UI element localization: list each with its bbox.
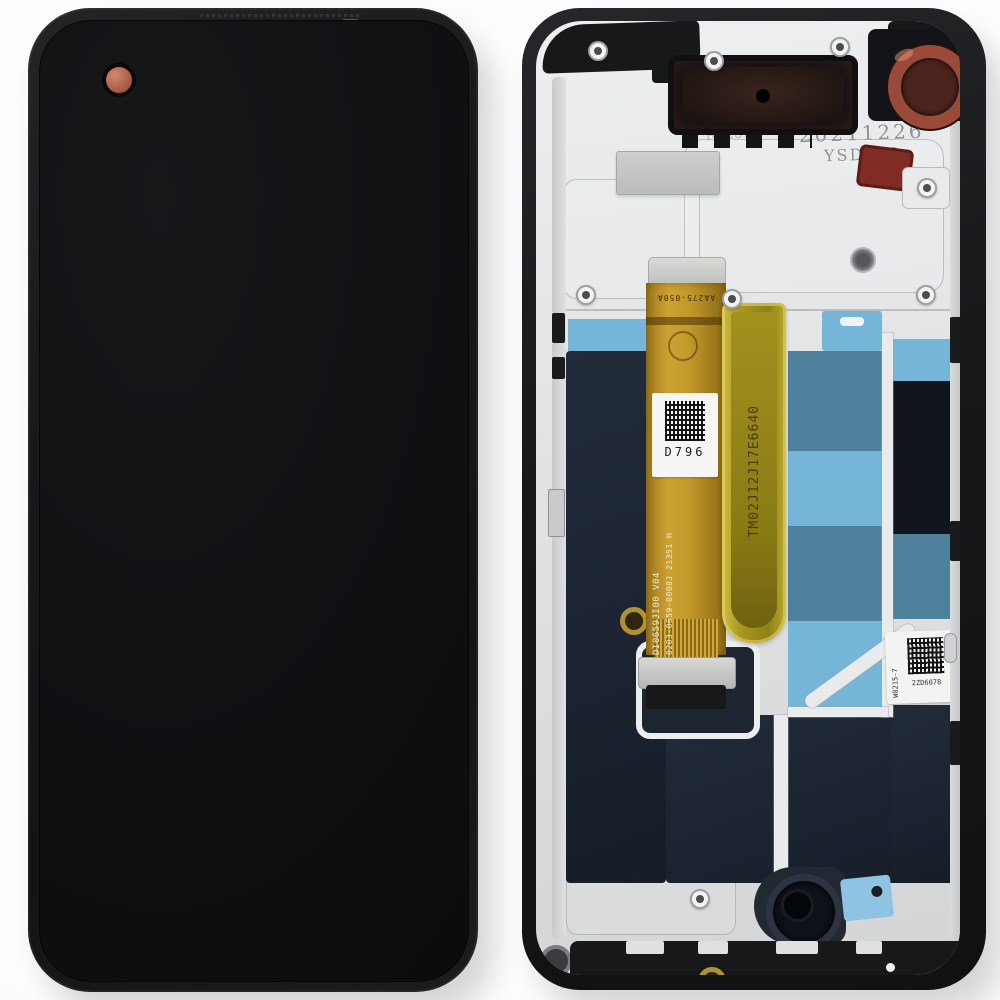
side-label-code: 2ZD6078 <box>902 678 950 688</box>
adhesive-tape-band <box>788 351 884 451</box>
earpiece-module <box>668 55 858 135</box>
punch-hole-camera <box>106 67 132 93</box>
front-screen <box>39 20 469 982</box>
phone-rear-view: AB257 W RJL52 20211226 YSD008 <box>522 8 986 990</box>
antenna-notch <box>552 357 565 379</box>
screw <box>576 285 596 305</box>
antenna-notch <box>950 317 960 363</box>
flex-marking-line2: 0203-0659-0000J 21351 H <box>665 485 674 655</box>
earpiece-slit <box>200 14 360 17</box>
module-gap <box>698 941 728 954</box>
phone-front-view <box>28 8 478 992</box>
screw <box>588 41 608 61</box>
bottom-plastic-module <box>570 941 960 975</box>
screw <box>916 285 936 305</box>
module-gap <box>626 941 664 954</box>
tape-pull-tab <box>822 311 882 351</box>
gold-ground-ring <box>620 607 648 635</box>
flex-board-connector <box>646 685 726 709</box>
left-rail-contact <box>548 489 565 537</box>
flex-label-code: D796 <box>652 445 718 459</box>
flex-qr-label: D796 <box>652 393 718 477</box>
camera-donut-core <box>784 892 811 919</box>
mic-hole <box>850 247 876 273</box>
kapton-tape-strip: TM02J12J17E6640 <box>722 303 786 643</box>
foam-pad <box>616 151 720 195</box>
right-side-rail <box>950 77 960 941</box>
front-camera-housing <box>868 29 960 121</box>
adhesive-tape-band <box>788 621 884 715</box>
blue-flex-piece <box>840 875 894 922</box>
adhesive-tape-band <box>788 526 884 621</box>
chassis-web-channel <box>788 707 888 717</box>
kapton-marking: TM02J12J17E6640 <box>747 405 762 537</box>
camera-bracket <box>902 167 950 209</box>
screw <box>690 889 710 909</box>
earpiece-teeth <box>682 135 812 148</box>
screw <box>917 178 937 198</box>
display-back-panel <box>891 705 954 883</box>
screw <box>830 37 850 57</box>
antenna-notch <box>950 721 960 765</box>
screw-hole <box>871 885 883 897</box>
antenna-notch <box>552 313 565 343</box>
rear-chassis-plate: AB257 W RJL52 20211226 YSD008 <box>536 21 960 975</box>
screw-dot <box>886 963 895 972</box>
flex-top-marking: AA275-050A <box>646 293 726 302</box>
bottom-ring-hole <box>540 945 572 975</box>
adhesive-tape-band <box>891 339 954 381</box>
tape-tab-slot <box>840 317 864 326</box>
gold-contact-ring <box>698 967 726 975</box>
flex-round-emblem <box>668 331 698 361</box>
flex-trace-band <box>646 317 726 325</box>
antenna-notch <box>950 521 960 561</box>
module-gap <box>856 941 882 954</box>
flex-marking-line1: DI0659JI00 V04 <box>652 485 662 655</box>
product-photo-stage: AB257 W RJL52 20211226 YSD008 <box>0 0 1000 1000</box>
qr-code-icon <box>907 637 944 674</box>
module-gap <box>776 941 818 954</box>
qr-code-icon <box>665 401 705 441</box>
screw <box>722 289 742 309</box>
rear-camera-surround <box>754 867 846 945</box>
display-back-window <box>891 381 954 534</box>
adhesive-tape-band <box>788 451 884 526</box>
earpiece-hole <box>756 89 770 103</box>
side-label-vertical-text: W0215-7 <box>890 638 900 698</box>
chassis-web-channel <box>774 715 788 883</box>
adhesive-tape-band <box>891 534 954 619</box>
flex-fine-traces <box>654 619 718 661</box>
side-button-contact <box>944 633 957 663</box>
screw <box>704 51 724 71</box>
